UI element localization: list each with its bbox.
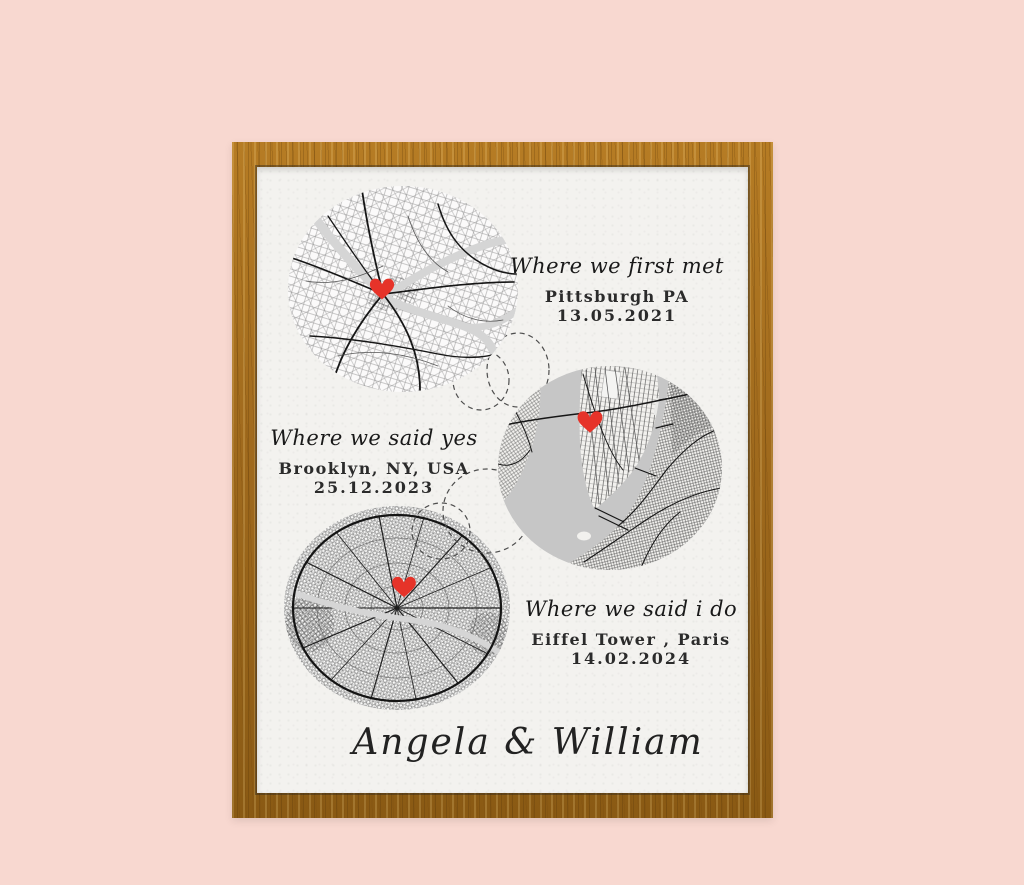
governors-island — [577, 532, 591, 541]
place-said-yes: Brooklyn, NY, USA — [257, 459, 494, 478]
couple-names-signature: Angela & William — [308, 719, 748, 767]
date-first-met: 13.05.2021 — [492, 306, 742, 325]
caption-said-yes: Where we said yes — [257, 423, 494, 453]
date-said-yes: 25.12.2023 — [257, 478, 494, 497]
new-york-map — [498, 366, 722, 570]
said-yes-text-block: Where we said yes Brooklyn, NY, USA 25.1… — [257, 423, 494, 497]
said-i-do-text-block: Where we said i do Eiffel Tower , Paris … — [506, 594, 748, 668]
pittsburgh-map — [288, 186, 518, 392]
caption-said-i-do: Where we said i do — [506, 594, 748, 624]
poster-paper: Where we first met Pittsburgh PA 13.05.2… — [257, 167, 748, 793]
wooden-frame: Where we first met Pittsburgh PA 13.05.2… — [232, 142, 773, 818]
first-met-text-block: Where we first met Pittsburgh PA 13.05.2… — [492, 251, 742, 325]
place-first-met: Pittsburgh PA — [492, 287, 742, 306]
caption-first-met: Where we first met — [492, 251, 742, 281]
place-said-i-do: Eiffel Tower , Paris — [506, 630, 748, 649]
date-said-i-do: 14.02.2024 — [506, 649, 748, 668]
